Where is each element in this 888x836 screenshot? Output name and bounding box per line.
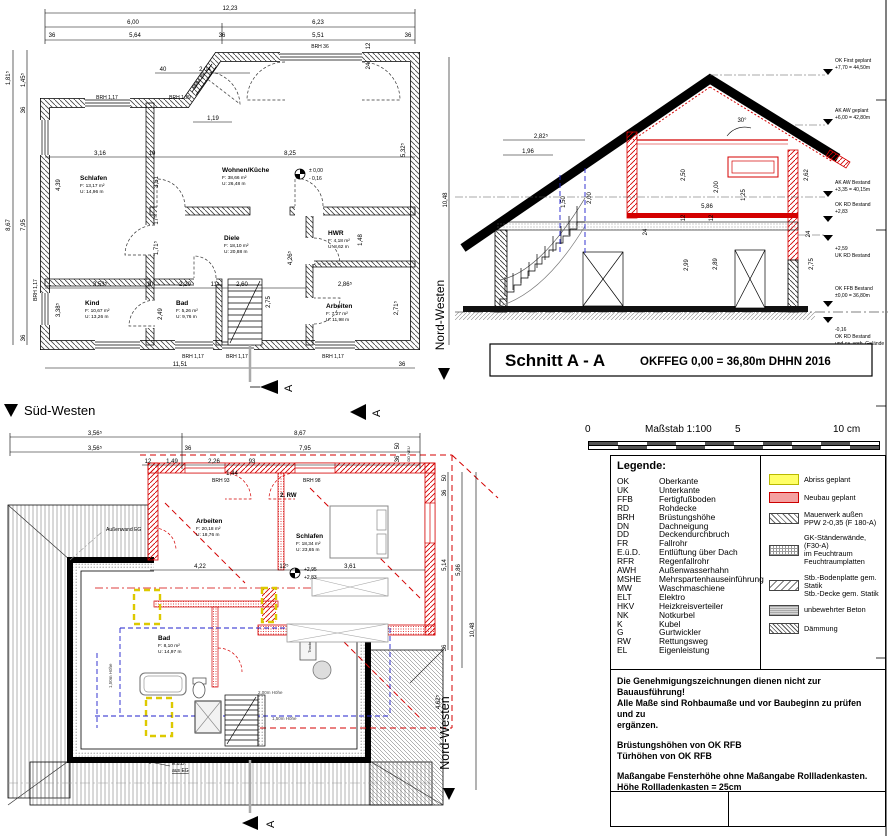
dim: 2,82⁵ (534, 133, 549, 140)
dim: 1,49 (166, 459, 178, 465)
dim: 50 (395, 442, 401, 449)
room-bad-per: U: 9,76 m (176, 314, 197, 320)
dim: 8,67 (6, 219, 12, 231)
dim: 2,86⁵ (338, 281, 353, 288)
room-diele-per: U: 20,88 m (224, 249, 247, 255)
room-schlafen: Schlafen (296, 533, 323, 540)
drawing-sheet: ± 0,00 - 0,16 Schlafen F: 13,17 m² U: 14… (0, 0, 888, 836)
symbol-row: unbewehrter Beton (769, 605, 885, 616)
dim: 12 (366, 42, 372, 49)
section-arrow-icon (350, 404, 366, 420)
section-doors (583, 250, 765, 308)
symbol-label-2: PPW 2-0,35 (F 180-A) (804, 519, 876, 527)
room-schlafen-per: U: 14,96 m (80, 189, 103, 195)
section-subtitle: OKFFEG 0,00 = 36,80m DHHN 2016 (640, 356, 831, 368)
section-letter: A (283, 384, 295, 392)
dd-neu-label: DD NEU (406, 446, 411, 461)
eg-floor-plan: ± 0,00 - 0,16 Schlafen F: 13,17 m² U: 14… (0, 0, 460, 398)
legend-abbreviations: Legende: OKOberkante UKUnterkante FFBFer… (611, 456, 761, 669)
dim: 2,00 (587, 192, 593, 204)
section-letter: A (371, 409, 383, 417)
note-line: Alle Maße sind Rohbaumaße und vor Baubeg… (617, 698, 879, 720)
term: Eigenleistung (659, 646, 709, 655)
legend-row: MWWaschmaschiene (617, 584, 760, 593)
legend-box: Legende: OKOberkante UKUnterkante FFBFer… (610, 455, 886, 827)
dim: 24 (366, 62, 372, 69)
level-label: AK AW geplant (835, 108, 869, 114)
eg-compass: Nord-Westen (433, 280, 450, 380)
legend-panel: 0 Maßstab 1:100 5 10 cm Legende: OKOberk… (583, 424, 888, 836)
dim: 17⁵ (153, 215, 160, 225)
dg-compass-label: Nord-Westen (438, 696, 452, 769)
dim: 1,45⁵ (20, 72, 27, 87)
dim: 6,00 (127, 20, 139, 26)
dim: 2,75 (266, 296, 272, 308)
dim: 11⁵ (211, 281, 220, 288)
dim: 2,00 (714, 181, 720, 193)
dg-stair (225, 695, 265, 746)
room-wohnen: Wohnen/Küche (222, 167, 270, 174)
brh-label: BRH 36 (311, 44, 329, 50)
room-schlafen-area: F: 18,34 m² (296, 541, 321, 547)
dim: 7,95 (299, 446, 311, 452)
brh-label: BRH 1,17 (322, 354, 344, 360)
dim: 10,48 (470, 622, 476, 638)
brh-label: BRH 1,29 (169, 95, 191, 101)
scale-five: 5 (735, 424, 741, 435)
dim: 8,25 (284, 151, 296, 157)
section-dims: 2,82⁵ 1,96 1,50 2,00 2,50 2,00 1,25 5,86… (503, 118, 815, 271)
dim: 1,19 (207, 116, 219, 122)
level-label: OK First geplant (835, 58, 872, 64)
symbol-row: Neubau geplant (769, 492, 885, 503)
legend-row: NKNotkurbel (617, 611, 760, 620)
dim: 2,62 (804, 169, 810, 181)
brh-label: BRH 1,17 (96, 95, 118, 101)
section-letter: A (265, 820, 277, 828)
dim: 36 (405, 33, 412, 39)
note-line: Maßangabe Fensterhöhe ohne Maßangabe Rol… (617, 771, 879, 782)
room-schlafen-area: F: 13,17 m² (80, 183, 105, 189)
compass-arrow-icon (4, 404, 18, 417)
dg-level-2: +2,83 (304, 575, 317, 581)
note-line: Türhöhen von OK RFB (617, 751, 879, 762)
room-schlafen: Schlafen (80, 175, 107, 182)
dim: 5,86 (456, 564, 462, 576)
symbol-label: unbewehrter Beton (804, 606, 866, 614)
room-arbeiten: Arbeiten (326, 303, 352, 310)
dg-heading: Süd-Westen A (4, 403, 383, 420)
dim: 12 (681, 214, 687, 221)
dim: 1,44 (226, 471, 238, 477)
section-arrow-icon (242, 816, 258, 830)
dim: 1,50 (561, 196, 567, 208)
room-diele-area: F: 18,10 m² (224, 243, 249, 249)
room-bad-per: U: 14,97 m (158, 649, 181, 655)
room-bad: Bad (158, 635, 170, 642)
section-title-box: Schnitt A - A OKFFEG 0,00 = 36,80m DHHN … (490, 344, 872, 376)
notes-box: Die Genehmigungszeichnungen dienen nicht… (611, 670, 885, 792)
dim: 36 (399, 362, 406, 368)
eg-level-1: ± 0,00 (309, 168, 323, 174)
symbol-label: Abriss geplant (804, 476, 850, 484)
dim: 1,48 (358, 234, 364, 246)
dg-rw-label: 2. RW (280, 493, 297, 499)
dim: 36 (219, 33, 226, 39)
brh-label: BRH 93 (212, 478, 230, 484)
title-block-strip (611, 792, 885, 826)
symbol-row: Mauerwerk außenPPW 2-0,35 (F 180-A) (769, 511, 885, 527)
eg-level-marker: ± 0,00 - 0,16 (295, 168, 323, 182)
height-label-150b: 1,50m Höhe (108, 663, 113, 688)
dim: 50 (442, 474, 448, 481)
dim: 4,22 (194, 564, 206, 570)
room-arbeiten-area: F: 7,27 m² (326, 311, 348, 317)
note-line: ergänzen. (617, 720, 879, 731)
concrete-slab-swatch-icon (769, 580, 799, 591)
dim: 12 (709, 214, 715, 221)
room-bad: Bad (176, 300, 188, 307)
dim: 6,23 (312, 20, 324, 26)
dim: 5,51 (312, 33, 324, 39)
drywall-swatch-icon (769, 545, 799, 556)
sheet-frame (870, 0, 888, 836)
dim: 1,71⁵ (153, 240, 160, 255)
level-label: +6,00 = 42,80m (835, 115, 870, 121)
room-hwr: HWR (328, 230, 344, 237)
dim: 2,71⁵ (393, 300, 400, 315)
dim: 4,39 (56, 179, 62, 191)
room-kind: Kind (85, 300, 99, 307)
brh-label: BRH 1,17 (33, 279, 39, 301)
dim: 7,95 (21, 219, 27, 231)
dim: 2,99 (684, 259, 690, 271)
symbol-label: Neubau geplant (804, 494, 856, 502)
room-hwr-per: U: 8,62 m (328, 244, 349, 250)
eg-section-marker: A (250, 345, 295, 394)
dim: 3,38⁵ (55, 302, 62, 317)
scale-bar-graphic (588, 441, 880, 451)
dg-floor-plan: Süd-Westen A Außenwand EG (0, 398, 520, 836)
scale-bar: 0 Maßstab 1:100 5 10 cm (583, 424, 888, 454)
demolition-swatch-icon (769, 474, 799, 485)
legend-title: Legende: (617, 460, 760, 472)
dim: 3,56⁵ (88, 445, 103, 452)
dim: 12 (145, 459, 152, 465)
dim: 36 (21, 334, 27, 341)
dim: 2,26 (208, 459, 220, 465)
dim: 36 (21, 106, 27, 113)
dim: 3,51 (154, 176, 160, 188)
legend-row: DDDeckendurchbruch (617, 530, 760, 539)
dim: 10,48 (443, 192, 449, 208)
masonry-swatch-icon (769, 513, 799, 524)
dim: 10 (147, 282, 154, 288)
dim: 40 (160, 67, 167, 73)
dim: 2,50 (681, 169, 687, 181)
room-arbeiten-area: F: 20,18 m² (196, 526, 221, 532)
dim: 5,64 (129, 33, 141, 39)
dim: 36 (442, 489, 448, 496)
abbr: NK (617, 611, 659, 620)
dim: 36 (442, 644, 448, 651)
symbol-label: Dämmung (804, 625, 838, 633)
dim: 5,14 (442, 559, 448, 571)
legend-symbols: Abriss geplant Neubau geplant Mauerwerk … (761, 456, 885, 669)
scale-zero: 0 (585, 424, 591, 435)
section-a-a: 2,82⁵ 1,96 1,50 2,00 2,50 2,00 1,25 5,86… (455, 40, 888, 400)
eg-level-2: - 0,16 (309, 176, 322, 182)
level-label: +2,83 (835, 209, 848, 215)
legend-row: ELEigenleistung (617, 646, 760, 655)
room-bad-area: F: 5,26 m² (176, 308, 198, 314)
aussenwand-eg-label: Außenwand EG (106, 527, 141, 533)
level-label: -0,16 (835, 327, 847, 333)
level-label: OK FFB Bestand (835, 286, 873, 292)
dim: 36 (395, 455, 401, 462)
room-arbeiten-per: U: 18,76 m (196, 532, 219, 538)
insulation-swatch-icon (769, 623, 799, 634)
new-build-swatch-icon (769, 492, 799, 503)
dim: 2,49 (158, 308, 164, 320)
dim: 1,81⁵ (5, 70, 12, 85)
room-kind-per: U: 13,26 m (85, 314, 108, 320)
dim: 8,67 (294, 431, 306, 437)
room-kind-area: F: 10,67 m² (85, 308, 110, 314)
roof-angle: 30° (737, 118, 747, 124)
symbol-row: GK-Ständerwände, (F30-A)im Feuchtraum Fe… (769, 534, 885, 566)
dim: 2,60 (236, 282, 248, 288)
scale-label: Maßstab 1:100 (645, 424, 712, 435)
plain-concrete-swatch-icon (769, 605, 799, 616)
dim: 3,53⁵ (93, 281, 108, 288)
dim: 11,51 (173, 362, 188, 368)
level-label: +3,35 = 40,15m (835, 187, 870, 193)
height-label-150: 1,50m Höhe (272, 716, 297, 721)
brh-label: BRH 98 (303, 478, 321, 484)
dim: 12⁵ (279, 563, 289, 570)
level-label: AK AW Bestand (835, 180, 871, 186)
dim: 24 (643, 228, 649, 235)
room-schlafen-per: U: 23,65 m (296, 547, 319, 553)
section-title: Schnitt A - A (505, 351, 605, 370)
eg-stair (228, 279, 262, 345)
dim: 5,86 (701, 204, 713, 210)
height-label-200: 2,00m Höhe (258, 690, 283, 695)
dg-heading-label: Süd-Westen (24, 403, 95, 418)
level-label: ±0,00 = 36,80m (835, 293, 870, 299)
dim: 2,20 (179, 282, 191, 288)
dim: 3,56⁵ (88, 430, 103, 437)
symbol-row: Stb.-Bodenplatte gem. StatikStb.-Decke g… (769, 574, 885, 598)
dim: 3,61 (344, 564, 356, 570)
level-label: OK RD Bestand (835, 202, 871, 208)
room-bad-area: F: 8,10 m² (158, 643, 180, 649)
dim: 12,23 (222, 6, 238, 12)
dim: 24 (806, 230, 812, 237)
symbol-row: Abriss geplant (769, 474, 885, 485)
eued-label: E.ü.D. (172, 761, 186, 767)
eued-label-2: aus EG (172, 768, 189, 774)
level-label: +7,70 = 44,50m (835, 65, 870, 71)
dim: 93 (249, 459, 256, 465)
room-wohnen-per: U: 26,48 m (222, 181, 245, 187)
room-hwr-area: F: 4,18 m² (328, 238, 350, 244)
note-line: Die Genehmigungszeichnungen dienen nicht… (617, 676, 879, 698)
room-diele: Diele (224, 235, 240, 242)
dim: 36 (185, 446, 192, 452)
dim: 36 (49, 33, 56, 39)
room-arbeiten: Arbeiten (196, 518, 222, 525)
dim: 1,25 (741, 189, 747, 201)
compass-arrow-icon (438, 368, 450, 380)
symbol-row: Dämmung (769, 623, 885, 634)
dim: 1,96 (522, 149, 534, 155)
dim: 10 (149, 151, 156, 157)
section-ground (455, 312, 888, 320)
level-label: UK RD Bestand (835, 253, 871, 259)
abbr: EL (617, 646, 659, 655)
brh-label: BRH 1,17 (226, 354, 248, 360)
compass-arrow-icon (443, 788, 455, 800)
dim: 3,16 (94, 151, 106, 157)
section-arrow-icon (260, 380, 278, 394)
level-label: OK RD Bestand (835, 334, 871, 340)
brh-label: BRH 1,17 (182, 354, 204, 360)
dim: 5,32⁵ (400, 142, 407, 157)
note-line: Brüstungshöhen von OK RFB (617, 740, 879, 751)
dim: 2,89 (713, 258, 719, 270)
level-label: +2,59 (835, 246, 848, 252)
room-arbeiten-per: U: 11,98 m (326, 317, 349, 323)
room-wohnen-area: F: 38,66 m² (222, 175, 247, 181)
scale-ten: 10 cm (833, 424, 860, 435)
dim: 2,75 (809, 258, 815, 270)
dim: 4,26⁵ (287, 250, 294, 265)
eg-compass-label: Nord-Westen (433, 280, 447, 350)
